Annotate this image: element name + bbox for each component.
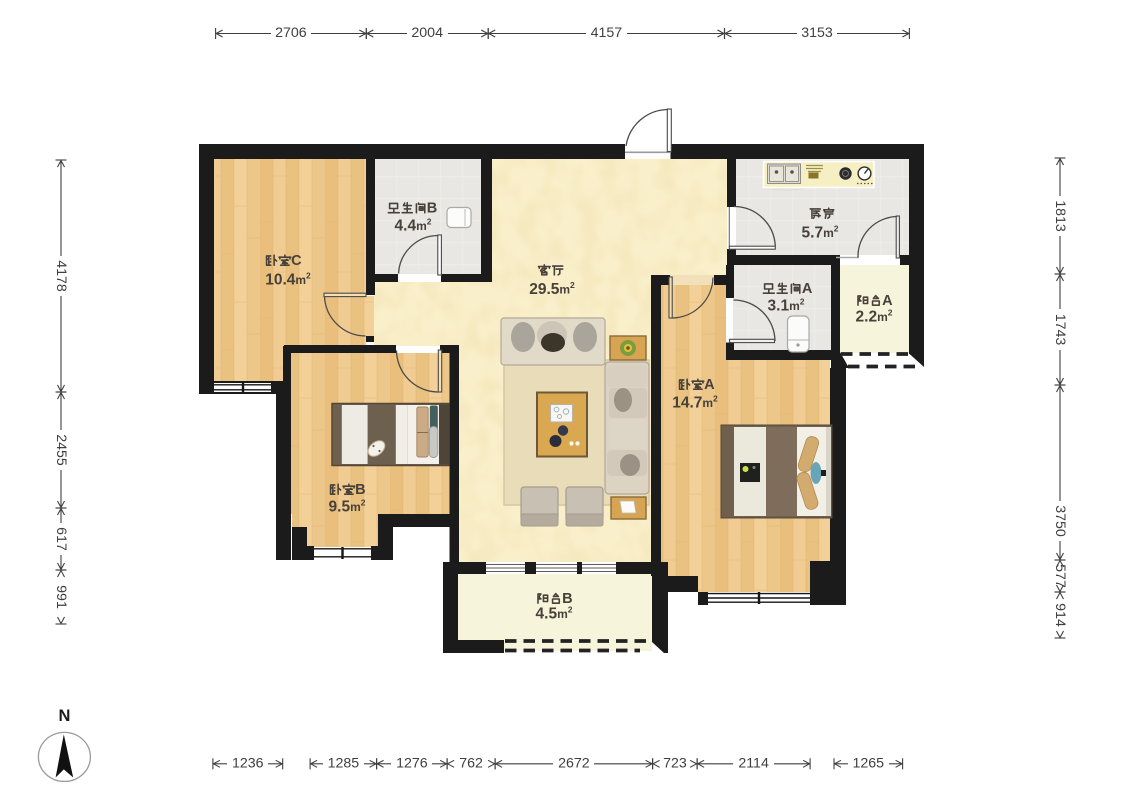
svg-text:1276: 1276	[396, 755, 428, 771]
svg-text:9.5m2: 9.5m2	[329, 498, 366, 516]
svg-text:14.7m2: 14.7m2	[672, 394, 718, 412]
svg-text:2.2m2: 2.2m2	[856, 308, 893, 326]
svg-text:C: C	[291, 253, 302, 269]
svg-text:2672: 2672	[558, 755, 590, 771]
svg-text:B: B	[355, 482, 365, 498]
svg-text:4.4m2: 4.4m2	[395, 217, 432, 235]
svg-text:1236: 1236	[232, 755, 264, 771]
svg-text:914: 914	[1052, 603, 1068, 627]
svg-text:4.5m2: 4.5m2	[536, 605, 573, 623]
svg-text:723: 723	[663, 755, 687, 771]
svg-text:2114: 2114	[738, 755, 769, 771]
svg-text:3153: 3153	[801, 25, 833, 41]
svg-text:991: 991	[53, 585, 69, 609]
svg-text:29.5m2: 29.5m2	[529, 280, 575, 298]
svg-text:3.1m2: 3.1m2	[768, 297, 805, 315]
svg-text:1265: 1265	[853, 755, 885, 771]
svg-text:617: 617	[53, 527, 69, 551]
svg-text:1743: 1743	[1052, 314, 1068, 346]
svg-text:A: A	[802, 281, 813, 297]
svg-text:5.7m2: 5.7m2	[802, 224, 839, 242]
svg-text:1813: 1813	[1052, 200, 1068, 232]
svg-text:2455: 2455	[53, 434, 69, 466]
svg-text:577: 577	[1052, 564, 1068, 588]
svg-text:3750: 3750	[1052, 505, 1068, 537]
svg-text:A: A	[704, 377, 715, 393]
svg-text:2004: 2004	[411, 25, 443, 41]
svg-text:N: N	[59, 707, 71, 725]
svg-text:2706: 2706	[275, 25, 307, 41]
svg-text:B: B	[427, 201, 437, 217]
svg-text:762: 762	[459, 755, 483, 771]
svg-text:4178: 4178	[53, 260, 69, 292]
svg-text:4157: 4157	[591, 25, 623, 41]
svg-text:10.4m2: 10.4m2	[265, 271, 311, 289]
svg-text:1285: 1285	[328, 755, 360, 771]
